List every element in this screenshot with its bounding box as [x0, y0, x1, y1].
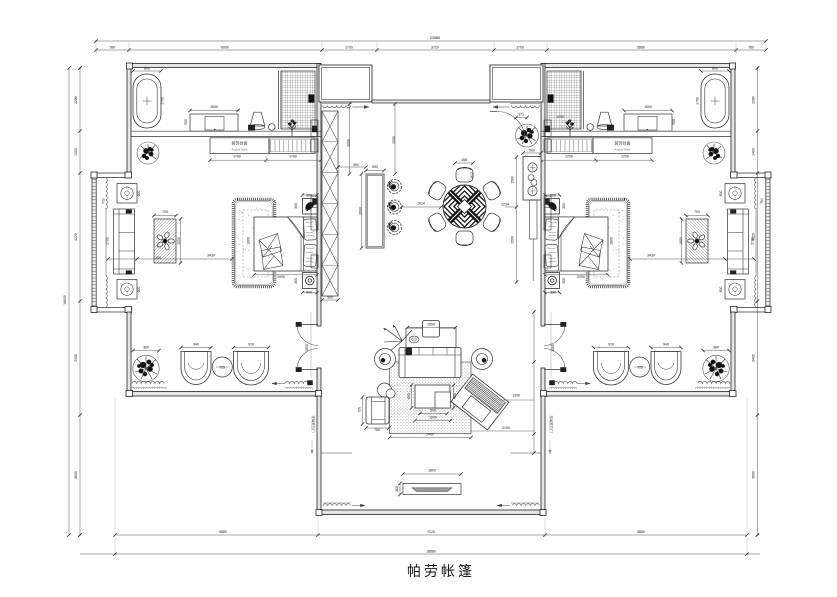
svg-text:18880: 18880 [426, 549, 436, 553]
svg-text:装饰台面: 装饰台面 [615, 140, 631, 146]
svg-text:500: 500 [327, 296, 333, 300]
svg-text:1500: 1500 [210, 105, 218, 109]
svg-text:1500: 1500 [427, 323, 435, 327]
svg-text:2000: 2000 [277, 275, 285, 279]
svg-text:500: 500 [430, 409, 436, 413]
svg-text:900: 900 [453, 393, 457, 399]
svg-text:2400: 2400 [74, 354, 78, 362]
svg-text:940: 940 [663, 343, 669, 347]
svg-text:1050: 1050 [679, 237, 683, 245]
svg-text:3430: 3430 [647, 254, 655, 258]
svg-text:600: 600 [137, 287, 141, 293]
svg-text:910: 910 [248, 343, 254, 347]
svg-text:750: 750 [374, 428, 380, 432]
svg-text:玻璃推拉门: 玻璃推拉门 [549, 416, 554, 434]
svg-text:4220: 4220 [74, 233, 78, 241]
svg-text:2200: 2200 [347, 139, 351, 147]
svg-text:7120: 7120 [427, 530, 435, 534]
svg-text:910: 910 [608, 343, 614, 347]
svg-text:590: 590 [372, 165, 378, 169]
svg-text:3600: 3600 [74, 471, 78, 479]
svg-text:500: 500 [550, 291, 556, 295]
svg-text:5880: 5880 [219, 530, 227, 534]
svg-text:16600: 16600 [63, 295, 67, 305]
svg-text:2000: 2000 [359, 207, 363, 215]
svg-text:360: 360 [143, 346, 149, 350]
svg-text:1750: 1750 [696, 97, 700, 105]
svg-text:2280: 2280 [74, 96, 78, 104]
svg-text:2700: 2700 [106, 237, 110, 245]
svg-text:1700: 1700 [621, 155, 629, 159]
svg-text:23680: 23680 [430, 36, 440, 40]
svg-text:玻璃推拉门: 玻璃推拉门 [311, 416, 316, 434]
svg-text:1700: 1700 [289, 155, 297, 159]
svg-text:600: 600 [719, 191, 723, 197]
svg-text:360: 360 [713, 346, 719, 350]
svg-text:1200: 1200 [556, 115, 564, 119]
svg-text:800: 800 [712, 67, 718, 71]
svg-text:1390: 1390 [512, 394, 520, 398]
svg-text:1700: 1700 [565, 155, 573, 159]
svg-text:725: 725 [219, 366, 225, 370]
svg-text:720: 720 [358, 407, 362, 413]
svg-text:940: 940 [193, 343, 199, 347]
svg-text:300: 300 [294, 203, 298, 209]
svg-text:2280: 2280 [752, 96, 756, 104]
svg-text:300: 300 [562, 278, 566, 284]
svg-text:1400: 1400 [74, 148, 78, 156]
svg-text:1234: 1234 [501, 203, 509, 207]
svg-text:1500: 1500 [644, 105, 652, 109]
svg-text:1700: 1700 [345, 45, 353, 49]
svg-text:1800: 1800 [428, 469, 436, 473]
svg-text:5880: 5880 [637, 45, 645, 49]
svg-text:1700: 1700 [516, 45, 524, 49]
svg-text:500: 500 [306, 291, 312, 295]
svg-text:1500: 1500 [511, 236, 515, 244]
svg-text:900: 900 [353, 163, 359, 167]
svg-text:700: 700 [102, 198, 106, 204]
svg-text:2400: 2400 [426, 433, 434, 437]
svg-text:750: 750 [760, 198, 764, 204]
svg-text:371: 371 [518, 113, 524, 117]
svg-text:700: 700 [162, 210, 168, 214]
svg-text:1500: 1500 [551, 344, 555, 352]
svg-text:500: 500 [306, 194, 312, 198]
svg-text:2200: 2200 [392, 136, 396, 144]
svg-text:488: 488 [461, 158, 467, 162]
svg-text:1200: 1200 [429, 416, 437, 420]
svg-text:2700: 2700 [751, 237, 755, 245]
svg-text:Accent Table: Accent Table [615, 148, 631, 152]
svg-text:2190: 2190 [502, 426, 510, 430]
svg-text:1700: 1700 [233, 155, 241, 159]
svg-text:1500: 1500 [305, 344, 309, 352]
svg-text:1400: 1400 [752, 148, 756, 156]
svg-text:2400: 2400 [752, 354, 756, 362]
svg-text:300: 300 [562, 203, 566, 209]
svg-text:Accent Table: Accent Table [232, 148, 248, 152]
svg-text:装饰台面: 装饰台面 [232, 140, 248, 146]
svg-text:1500: 1500 [511, 176, 515, 184]
svg-text:900: 900 [672, 119, 676, 125]
svg-text:5880: 5880 [637, 530, 645, 534]
svg-text:2000: 2000 [577, 275, 585, 279]
svg-text:650: 650 [407, 393, 411, 399]
svg-text:1800: 1800 [247, 237, 251, 245]
svg-text:900: 900 [184, 119, 188, 125]
svg-text:780: 780 [109, 45, 115, 49]
svg-text:1750: 1750 [161, 97, 165, 105]
svg-text:300: 300 [395, 486, 399, 492]
svg-text:700: 700 [694, 210, 700, 214]
svg-text:1050: 1050 [177, 237, 181, 245]
svg-text:600: 600 [719, 287, 723, 293]
svg-text:6000: 6000 [221, 45, 229, 49]
svg-text:500: 500 [550, 194, 556, 198]
svg-text:780: 780 [748, 45, 754, 49]
svg-text:600: 600 [137, 191, 141, 197]
svg-text:800: 800 [144, 67, 150, 71]
svg-text:1014: 1014 [417, 202, 425, 206]
svg-text:725: 725 [637, 366, 643, 370]
svg-text:3720: 3720 [431, 45, 439, 49]
svg-text:1800: 1800 [610, 237, 614, 245]
svg-text:3600: 3600 [752, 471, 756, 479]
svg-text:300: 300 [294, 278, 298, 284]
svg-text:812: 812 [470, 172, 474, 178]
svg-text:3430: 3430 [207, 254, 215, 258]
svg-text:180: 180 [155, 256, 161, 260]
svg-text:500: 500 [529, 149, 535, 153]
